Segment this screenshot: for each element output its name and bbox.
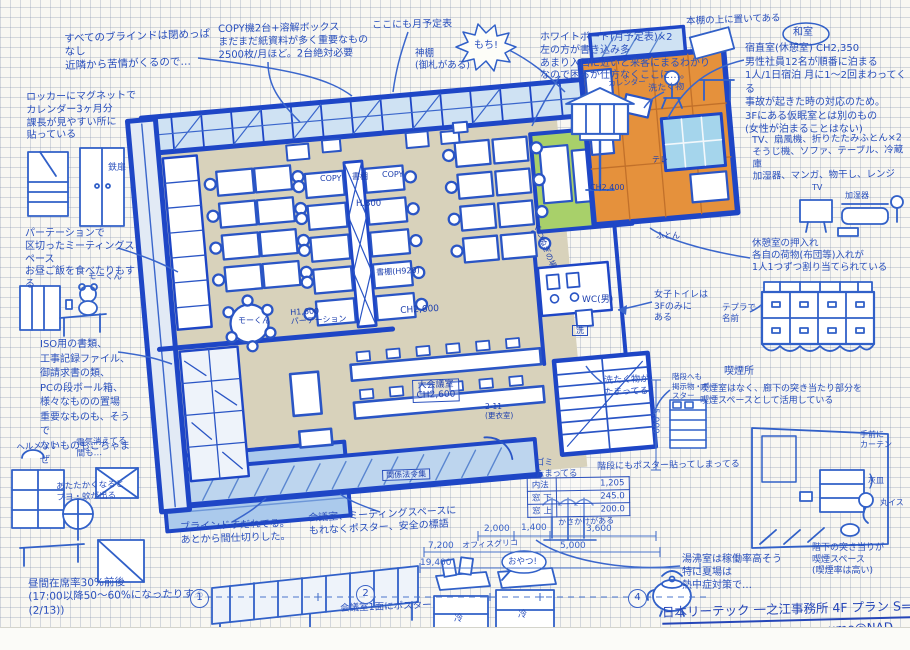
dim-19400: 19,400 (420, 558, 452, 568)
note-snack-bubble: おやつ! (508, 557, 537, 568)
dim-7200: 7,200 (428, 541, 454, 551)
note-copy-machines: COPY機2台+溶解ボックス まだまだ紙資料が多く重要なもの 2500枚/月ほど… (218, 21, 379, 62)
note-tepra: テプラで 名前 (722, 303, 768, 325)
plan-label-laundry-machine: 洗 (572, 325, 588, 336)
plan-label-tv-wall: テレ (652, 155, 668, 164)
plan-label-shelf-top: 書棚 (352, 172, 368, 181)
spec-label: 内法 (527, 478, 556, 491)
note-sudare: ブラインドすだれてる。 あとから間仕切りした。 (180, 518, 301, 548)
note-closet: 休憩室の押入れ 各自の荷物(布団等)入れが 1人1つずつ割り当てられている (752, 238, 910, 274)
note-laundry-piled: 洗たく物が たまってる (604, 374, 667, 399)
table-row: 窓 上200.0 (528, 503, 630, 518)
axis-marker-1: 1 (190, 589, 209, 608)
spec-table: 内法1,205 窓 下245.0 窓 上200.0 (527, 476, 630, 518)
dim-3600: 3,600 (586, 524, 612, 534)
note-humidifier: 加湿器 (845, 191, 869, 201)
plan-label-futon: ふとん (656, 231, 680, 240)
plan-label-ch2600: CH2,600 (400, 304, 439, 316)
note-night-duty: 宿直室(休憩室) CH2,350 男性社員12名が順番に泊まる 1人/1日宿泊 … (745, 42, 910, 137)
plan-label-locker-room: 2-11 (更衣室) (485, 403, 513, 420)
note-tv-small: TV (812, 183, 822, 193)
note-steel-door: 鉄扉 (108, 163, 126, 175)
plan-label-laws: 関係法令集 (382, 468, 430, 481)
note-smoking: 喫煙室はなく、廊下の突き当たり部分を 喫煙スペースとして活用している (700, 384, 910, 407)
note-monthly-here: ここにも月予定表 (372, 18, 502, 33)
note-fridge-2: 冷 (518, 610, 527, 622)
plan-label-copy-b: COPY (382, 170, 403, 179)
note-kettle-room: 湯沸室は稼働率高そう 特に夏場は 熱中症対策で… (682, 554, 812, 592)
note-stool: 丸イス (880, 498, 904, 508)
closet-cabinet-sketch (762, 282, 874, 351)
axis-marker-2: 2 (356, 585, 375, 604)
dim-5000: 5,000 (560, 541, 586, 551)
plan-label-wc: WC(男) (582, 295, 613, 305)
sketch-sheet: すべてのブラインドは閉めっぱなし 近隣から苦情がくるので… ロッカーにマグネット… (0, 0, 910, 650)
scan-edge (0, 627, 910, 650)
spec-value: 245.0 (556, 490, 629, 504)
note-fridge-1: 冷 (454, 614, 463, 626)
note-blinds: すべてのブラインドは閉めっぱなし 近隣から苦情がくるので… (64, 28, 215, 74)
dim-1400: 1,400 (521, 523, 547, 533)
note-whiteboard: ホワイトボード(月予定表)×2 左の方が書き込み多 あまり入口に近いと来客にまる… (540, 32, 720, 83)
note-warm-season: あたたかくなると ブヨ・蚊が出る (56, 479, 152, 504)
note-laundry: 洗たく物 (648, 82, 685, 95)
plan-label-mo-kun: モーくん (238, 316, 270, 325)
note-washitsu: 和室 (793, 27, 813, 40)
spec-label: 窓 下 (527, 491, 556, 504)
spec-value: 200.0 (556, 503, 629, 517)
note-mochi-bubble: もち! (474, 40, 498, 53)
note-calendar-small: カレンダー (608, 77, 646, 89)
note-womens-wc: 女子トイレは 3Fのみに ある (654, 290, 710, 325)
axis-marker-4: 4 (628, 589, 647, 608)
storage-pile-sketch (12, 450, 144, 582)
plan-label-copy-a: COPY (320, 174, 341, 183)
plan-label-h1600: H1,600 パーテーション (290, 305, 347, 326)
stairs-poster-sketch (670, 400, 706, 448)
plan-label-main-meeting: 大会議室 CH2,600 (412, 378, 460, 402)
note-mo-kun: モーくん (88, 272, 122, 283)
dim-2000: 2,000 (484, 524, 510, 534)
note-meeting-corner: パーテーションで 区切ったミーティングスペース お昼ご飯を食べたりもする (25, 228, 140, 292)
note-smoking-spot: 喫煙所 (724, 366, 754, 379)
tv-sofa-sketch (800, 196, 903, 236)
calendar-locker-sketch (28, 148, 124, 226)
note-ashtray: 灰皿 (868, 476, 884, 486)
note-lights-off: 電気消えてる 間も… (76, 436, 139, 460)
plan-label-ch2400: CH2,400 (590, 183, 625, 192)
note-stairs-notice: 階段へも 掲示物・ポスター (672, 372, 714, 401)
note-duty-items: TV、扇風機、折りたたみふとん×2 そうじ機、ソファ、テーブル、冷蔵庫 加湿器、… (752, 132, 910, 183)
note-locker-calendar: ロッカーにマグネットで カレンダー3ヶ月分 課長が見やすい所に 貼っている (26, 90, 142, 143)
dim-5000-vertical: 5,000 (650, 408, 660, 434)
spec-label: 窓 上 (528, 504, 557, 517)
note-downstairs-smoking: 階下の突き当りが 喫煙スペース (喫煙率は高い) (812, 543, 910, 578)
plan-label-h800: H.800 (356, 200, 381, 210)
note-curtain: 手前に カーテン (860, 430, 904, 450)
spec-value: 1,205 (556, 477, 629, 491)
